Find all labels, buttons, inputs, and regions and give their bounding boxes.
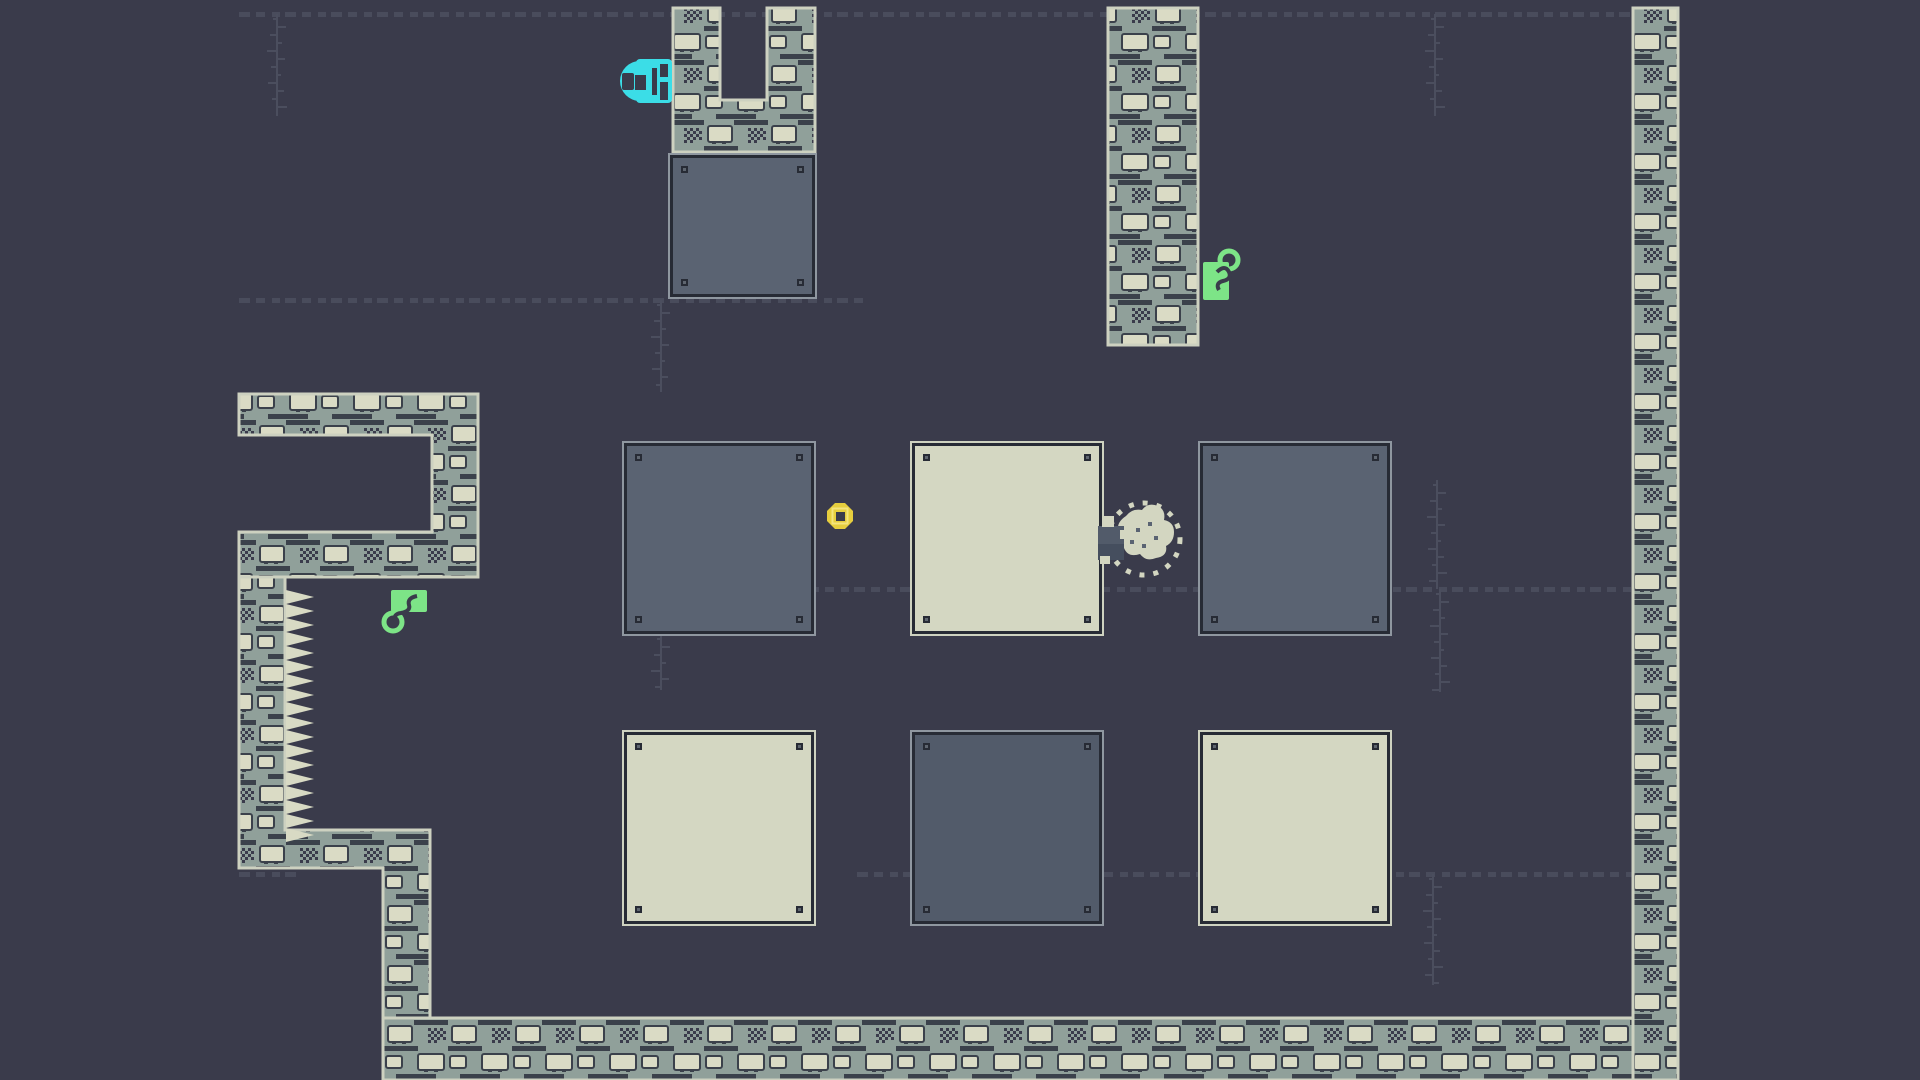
coin[interactable] <box>827 503 853 529</box>
key-green-left[interactable] <box>384 590 427 631</box>
items-layer <box>0 0 1920 1080</box>
key-green-right[interactable] <box>1203 251 1238 300</box>
lock-cyan[interactable] <box>620 59 672 103</box>
game-canvas[interactable] <box>0 0 1920 1080</box>
player[interactable] <box>1098 503 1180 575</box>
